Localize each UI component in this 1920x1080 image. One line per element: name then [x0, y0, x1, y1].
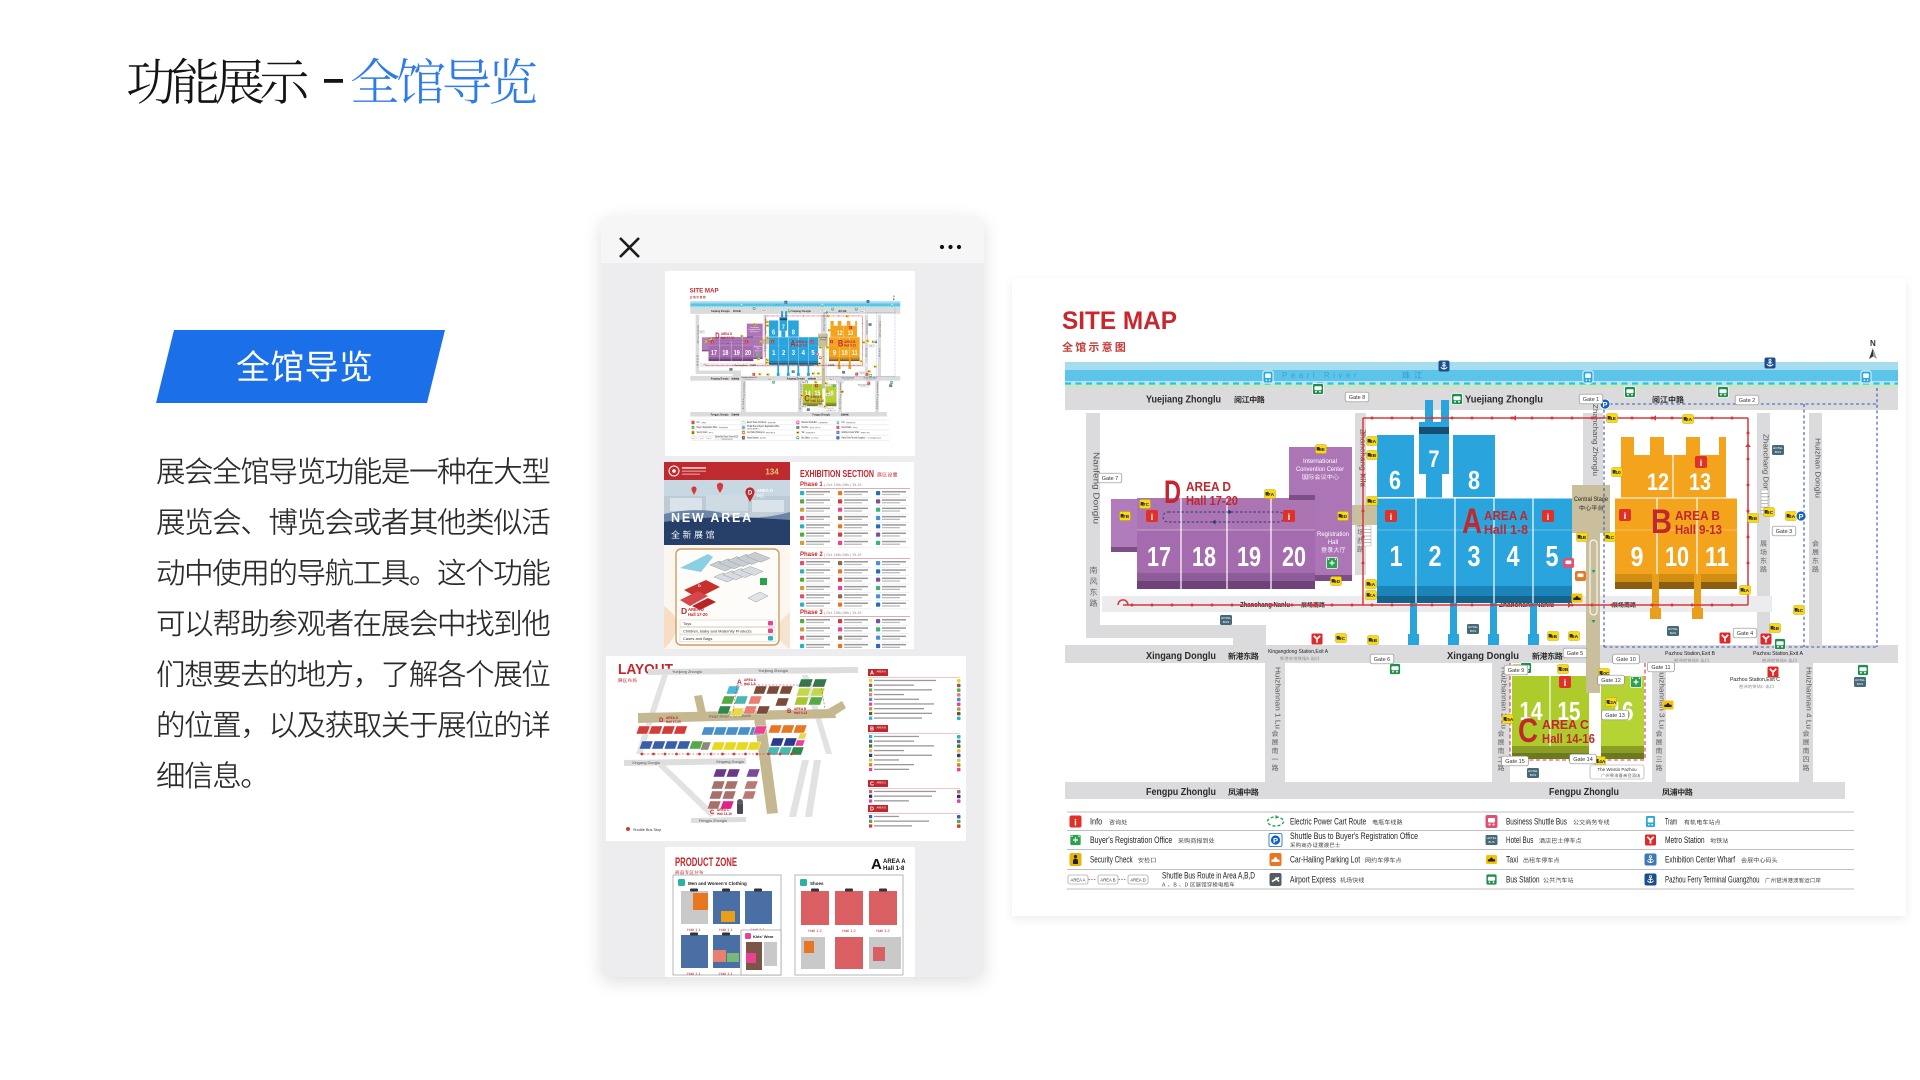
- svg-text:D: D: [659, 718, 664, 724]
- svg-text:Children, Baby and Maternity P: Children, Baby and Maternity Products: [683, 628, 751, 633]
- svg-text:EXHIBITION SECTION: EXHIBITION SECTION: [800, 469, 874, 480]
- svg-text:D: D: [698, 583, 701, 588]
- svg-text:Toys: Toys: [683, 621, 691, 626]
- svg-text:134: 134: [765, 468, 779, 477]
- svg-text:C: C: [870, 782, 874, 788]
- svg-text:Hall 1.1: Hall 1.1: [687, 971, 701, 976]
- svg-text:AREA B: AREA B: [877, 725, 887, 729]
- svg-text:Phase 2: Phase 2: [800, 552, 823, 558]
- svg-text:D区: D区: [757, 493, 764, 498]
- svg-text:Hall 1.1: Hall 1.1: [719, 927, 733, 932]
- svg-text:A: A: [870, 671, 874, 677]
- svg-text:PRODUCT ZONE: PRODUCT ZONE: [675, 855, 737, 869]
- svg-text:A: A: [871, 856, 882, 873]
- svg-text:Hall 1.1: Hall 1.1: [719, 971, 733, 976]
- svg-text:AREA D: AREA D: [877, 805, 887, 809]
- svg-text:Phase 1: Phase 1: [800, 482, 823, 488]
- svg-text:Kids' Wear: Kids' Wear: [753, 934, 774, 939]
- svg-text:Xingang Donglu: Xingang Donglu: [716, 759, 744, 764]
- svg-text:AREA C: AREA C: [877, 780, 887, 784]
- svg-text:Yuejiang Zhonglu: Yuejiang Zhonglu: [758, 668, 788, 673]
- svg-text:Hall 17-20: Hall 17-20: [688, 612, 708, 617]
- svg-text:( Oct. 15th-19th ) 15-19: ( Oct. 15th-19th ) 15-19: [824, 483, 861, 487]
- svg-text:AREA A: AREA A: [877, 669, 886, 673]
- svg-text:B: B: [787, 709, 792, 715]
- svg-text:Hall 17-20: Hall 17-20: [666, 720, 681, 724]
- svg-text:Men and Women's Clothing: Men and Women's Clothing: [688, 881, 747, 886]
- svg-text:Yuejiang Zhonglu: Yuejiang Zhonglu: [672, 669, 702, 674]
- svg-text:Shuttle Bus Stop: Shuttle Bus Stop: [633, 828, 661, 832]
- svg-text:Hall 14-16: Hall 14-16: [717, 812, 732, 816]
- svg-text:AREA A: AREA A: [883, 859, 906, 865]
- svg-text:D: D: [681, 606, 687, 616]
- svg-text:Hall 1.2: Hall 1.2: [808, 928, 822, 933]
- svg-text:Phase 3: Phase 3: [800, 610, 823, 616]
- svg-text:Hall 1-8: Hall 1-8: [883, 866, 905, 872]
- svg-text:D: D: [748, 491, 753, 497]
- svg-text:( Oct. 15th-19th ) 15-19: ( Oct. 15th-19th ) 15-19: [824, 611, 861, 615]
- svg-text:Hall 1.2: Hall 1.2: [842, 928, 856, 933]
- svg-text:NEW AREA: NEW AREA: [671, 511, 753, 525]
- svg-text:Shoes: Shoes: [810, 881, 824, 886]
- svg-text:Hall 1.1: Hall 1.1: [687, 927, 701, 932]
- svg-text:( Oct. 15th-19th ) 15-19: ( Oct. 15th-19th ) 15-19: [824, 553, 861, 557]
- svg-text:Hall 1-8: Hall 1-8: [744, 682, 756, 686]
- svg-text:B: B: [870, 727, 874, 733]
- svg-text:Xingang Donglu: Xingang Donglu: [632, 760, 660, 765]
- svg-text:C: C: [710, 810, 715, 816]
- svg-text:Fengpu Zhonglu: Fengpu Zhonglu: [699, 818, 727, 823]
- svg-text:D: D: [870, 807, 874, 813]
- svg-text:Hall 9-13: Hall 9-13: [794, 711, 807, 715]
- svg-text:Hall 1.2: Hall 1.2: [876, 928, 890, 933]
- svg-text:Cases and Bags: Cases and Bags: [683, 636, 712, 641]
